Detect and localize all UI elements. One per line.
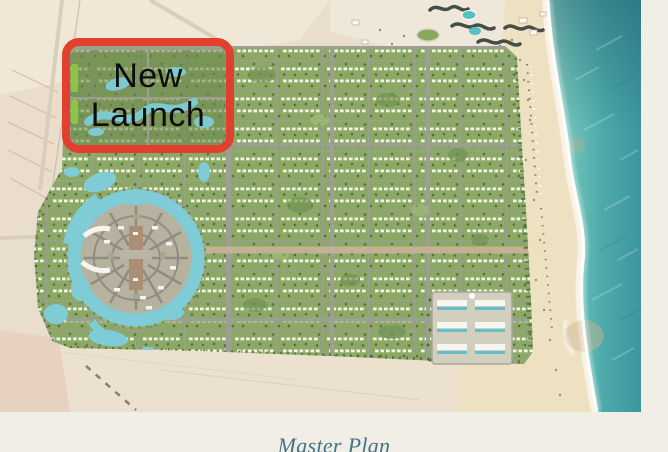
resort-pool [462,11,476,20]
new-launch-annotation-box: New Launch [62,38,234,153]
map-caption: Master Plan [0,433,668,452]
resort-pool [469,27,481,35]
resort-lawn-oval [417,29,439,41]
new-launch-label-line1: New [113,57,183,96]
beachfront-hotel-cluster [427,292,513,364]
pond [198,162,210,182]
new-launch-label-line2: Launch [91,96,206,135]
master-plan-image: New Launch [0,0,641,412]
page: New Launch Master Plan [0,0,668,452]
